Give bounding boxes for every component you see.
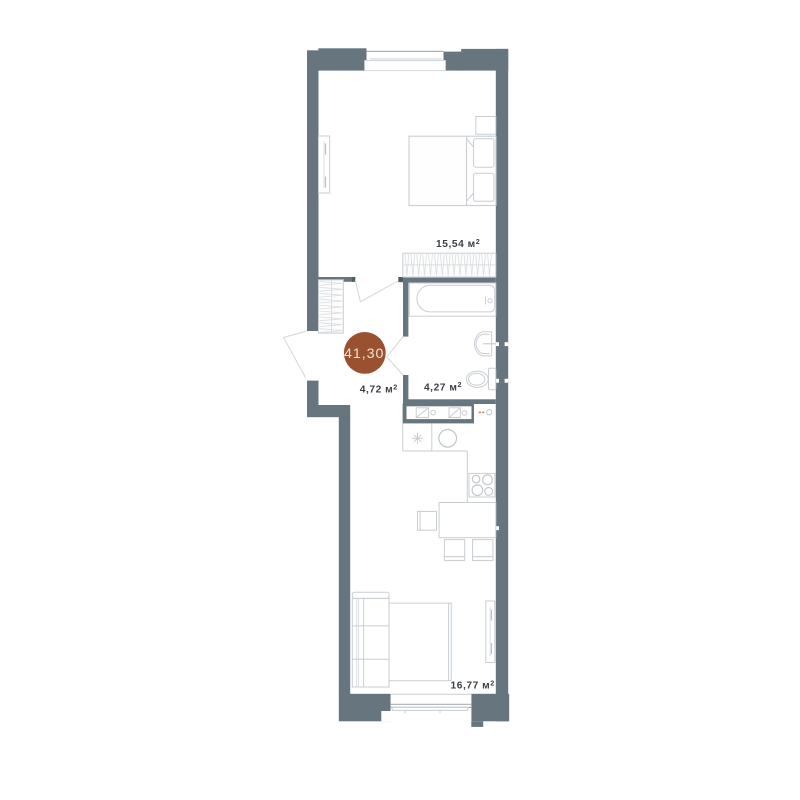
svg-text:15,54 м2: 15,54 м2: [436, 237, 480, 250]
svg-text:16,77 м2: 16,77 м2: [451, 678, 495, 691]
svg-text:4,72 м2: 4,72 м2: [360, 382, 398, 395]
svg-text:41,30: 41,30: [344, 346, 385, 362]
svg-text:4,27 м2: 4,27 м2: [424, 380, 462, 393]
